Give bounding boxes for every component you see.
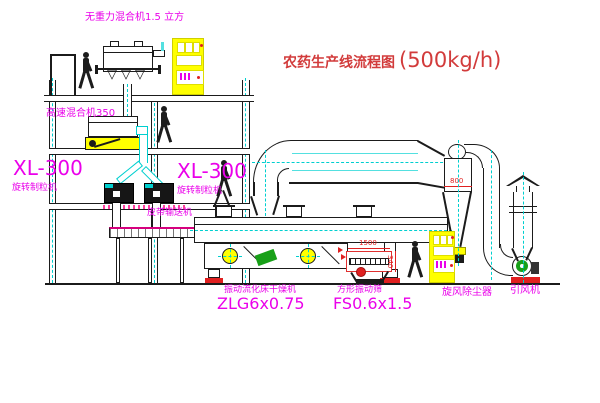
granulator-window	[113, 191, 120, 197]
screen-vibrator-motor	[356, 267, 366, 277]
mixer-discharge-elbow	[136, 126, 148, 135]
title-capacity: (500kg/h)	[399, 48, 501, 72]
cabinet-panel	[176, 55, 202, 66]
shaft-flange	[95, 65, 98, 74]
control-cabinet-bottom	[429, 231, 455, 283]
floor-slab-2	[49, 148, 250, 155]
discharge-cone-icon: ▽	[135, 68, 145, 81]
cyclone-centerline	[458, 140, 459, 266]
person-figure	[78, 52, 94, 95]
cabinet-panel	[185, 42, 193, 53]
title-chinese: 农药生产线流程图	[283, 52, 395, 72]
panel-mark	[444, 261, 446, 268]
person-leg	[86, 72, 94, 89]
port-flange	[283, 205, 305, 207]
conveyor-leg	[180, 238, 184, 283]
granulator-left-model-label: XL-300	[13, 158, 83, 178]
exhaust-hood-side	[251, 196, 259, 215]
discharge-cone-icon: ▽	[107, 68, 117, 81]
riser-centerline	[265, 150, 266, 216]
granulator-right-name-label: 旋转制粒机	[177, 187, 222, 196]
cabinet-panel	[433, 235, 440, 245]
mixer-discharge-pipe	[139, 135, 148, 163]
screen-dim-line	[395, 251, 396, 272]
dryer-model-label: ZLG6x0.75	[217, 296, 305, 312]
duct-taper	[418, 182, 445, 188]
mixer-lid-line	[104, 52, 152, 53]
control-cabinet-top	[172, 38, 204, 95]
high-speed-mixer-body	[88, 116, 138, 137]
gravity-mixer-label: 无重力混合机1.5 立方	[85, 13, 184, 23]
person-leg	[407, 261, 415, 278]
floor-slab-1	[44, 95, 254, 102]
shaft-flange	[158, 65, 161, 74]
fan-label: 引风机	[510, 286, 540, 296]
person-figure	[156, 106, 172, 149]
cabinet-panel	[433, 246, 454, 256]
indicator-light	[451, 236, 454, 239]
ground-line	[45, 283, 560, 285]
mixer-lid-line	[89, 122, 137, 123]
page-title: 农药生产线流程图 (500kg/h)	[283, 48, 501, 72]
screen-model-label: FS0.6x1.5	[333, 296, 412, 312]
panel-mark	[436, 261, 438, 268]
dryer-foot	[208, 269, 220, 278]
duct-flow-line	[292, 170, 418, 171]
indicator-light	[197, 76, 200, 79]
person-figure	[407, 241, 423, 284]
dryer-centerline	[190, 230, 452, 231]
duct-taper	[417, 140, 445, 156]
flow-arrow	[338, 247, 343, 253]
duct-flow-line	[292, 153, 418, 154]
mount-crosshair	[308, 244, 309, 268]
cabinet-panel	[177, 42, 185, 53]
panel-mark	[184, 73, 186, 80]
y-chute-left-branch	[116, 161, 143, 185]
mixer-top-port	[134, 41, 143, 47]
panel-mark	[440, 261, 442, 268]
indicator-light	[200, 44, 203, 47]
mixer-top-port	[110, 41, 119, 47]
person-leg	[156, 126, 164, 143]
port-flange	[353, 205, 375, 207]
duct-centerline	[252, 162, 448, 163]
granulator-left-name-label: 旋转制粒机	[12, 184, 57, 193]
person-leg	[415, 261, 423, 278]
dryer-deck-line	[195, 224, 447, 225]
high-speed-mixer-label: 高速混合机350	[46, 109, 115, 119]
person-leg	[164, 126, 172, 143]
cabinet-panel	[440, 235, 447, 245]
granulator-right-model-label: XL-300	[177, 161, 247, 181]
railing-post	[74, 54, 76, 95]
granulator-window	[153, 191, 160, 197]
stack-centerline	[523, 172, 524, 283]
cabinet-panel	[193, 42, 200, 53]
port-flange	[213, 205, 235, 207]
pipe-centerline	[491, 150, 492, 280]
mixer-side-pipe	[153, 50, 165, 57]
granulator-discharge-pipe	[112, 203, 121, 227]
granulator-right	[144, 183, 174, 203]
mixer-vent	[161, 42, 164, 51]
screen-height-dim: 340	[386, 255, 393, 268]
conveyor-leg	[116, 238, 120, 283]
belt-conveyor-label: 皮带输送机	[147, 209, 192, 218]
cyclone-cone-side	[460, 192, 472, 247]
exhaust-hood-side	[273, 196, 280, 216]
granulator-port	[145, 184, 153, 188]
fan-motor	[531, 262, 539, 274]
duct-riser-wall	[253, 182, 255, 196]
indicator-light	[450, 264, 453, 267]
screen-dim-line	[348, 248, 390, 249]
conveyor-leg	[148, 238, 152, 283]
granulator-left	[104, 183, 134, 203]
pesticide-line-flow-diagram: 农药生产线流程图 (500kg/h) ▽ ▽ ▽	[0, 0, 600, 403]
railing-post	[50, 54, 52, 95]
duct-bottom-wall	[289, 182, 418, 184]
drop-pipe-centerline	[127, 84, 128, 117]
duct-riser-wall	[277, 182, 279, 196]
mount-crosshair	[230, 244, 231, 268]
screen-deck	[349, 258, 389, 265]
panel-mark	[180, 73, 182, 80]
screen-length-dim: 1500	[359, 240, 377, 247]
cyclone-label: 旋风除尘器	[442, 288, 492, 298]
railing	[50, 54, 76, 56]
discharge-cone-icon: ▽	[121, 68, 131, 81]
granulator-port	[105, 184, 113, 188]
person-leg	[78, 72, 86, 89]
panel-mark	[188, 73, 190, 80]
